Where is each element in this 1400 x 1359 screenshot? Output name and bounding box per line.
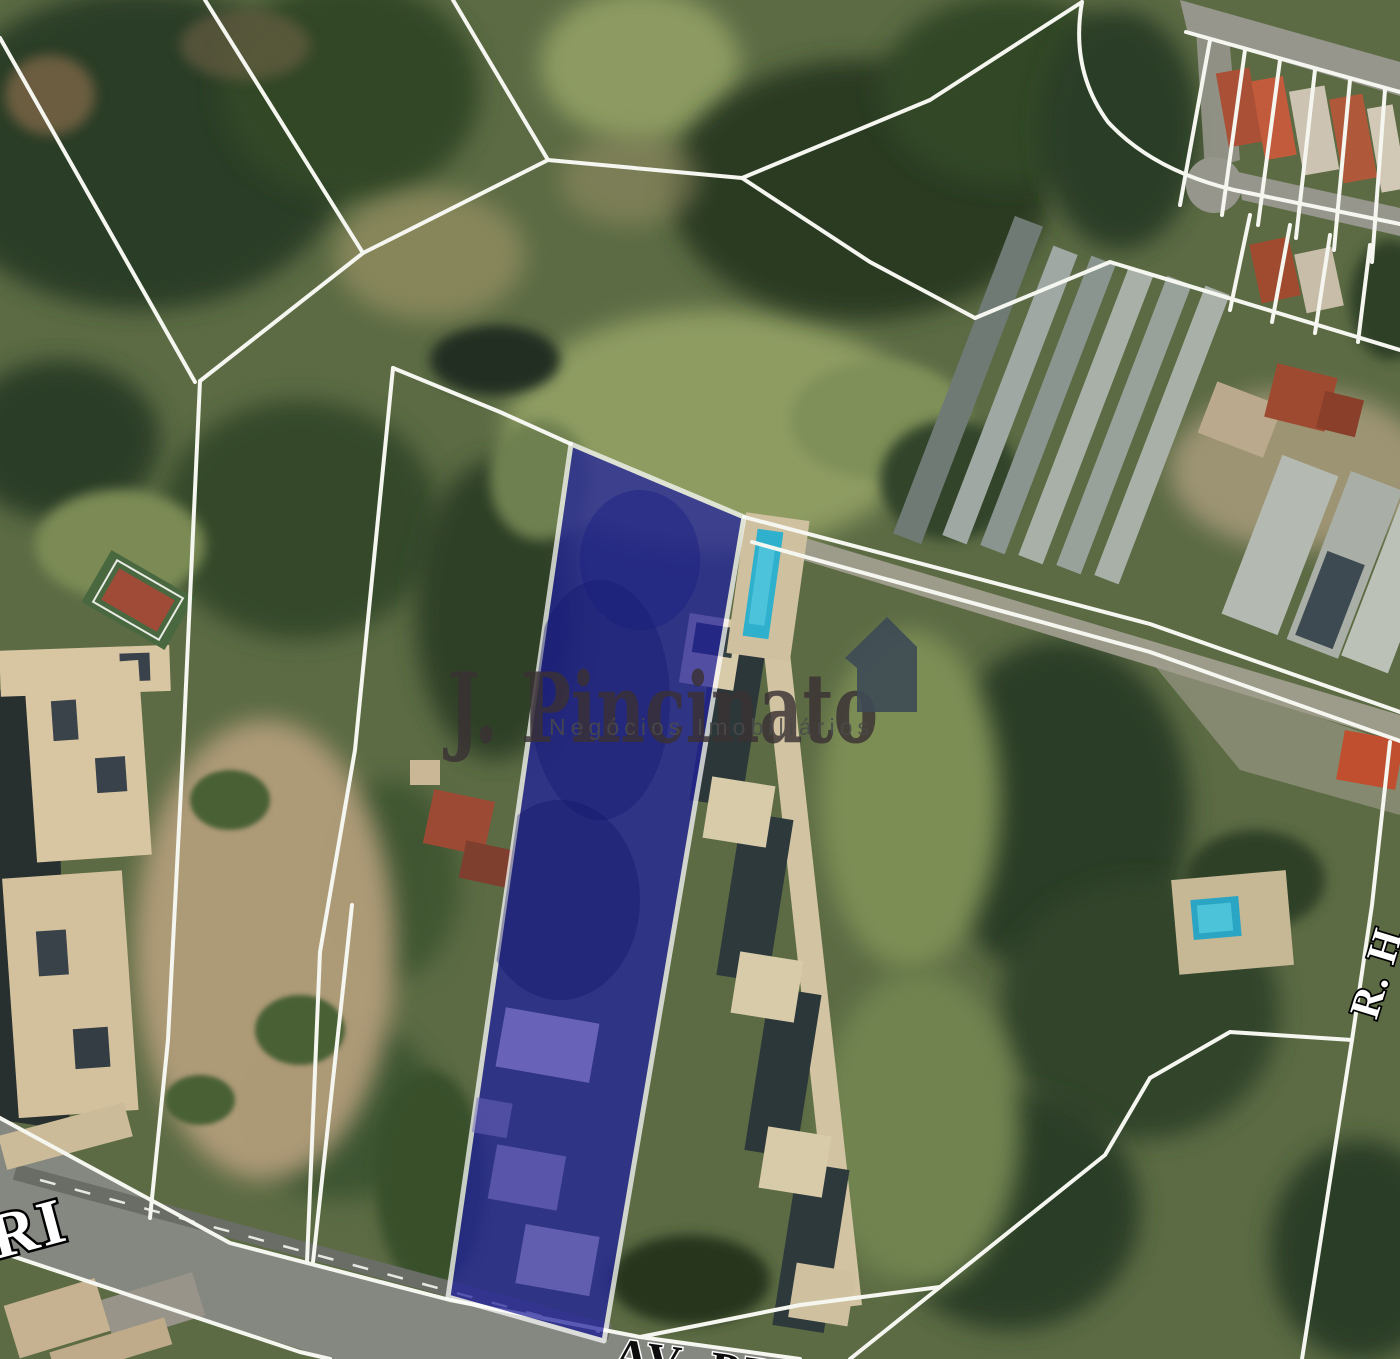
satellite-map: RI AV. PR R. H J. Pincinato Negócios Imo…	[0, 0, 1400, 1359]
pond	[430, 325, 560, 395]
watermark-title: J. Pincinato	[442, 652, 878, 765]
house-pool	[1171, 870, 1294, 975]
watermark-subtitle: Negócios Imobiliários	[549, 714, 869, 740]
